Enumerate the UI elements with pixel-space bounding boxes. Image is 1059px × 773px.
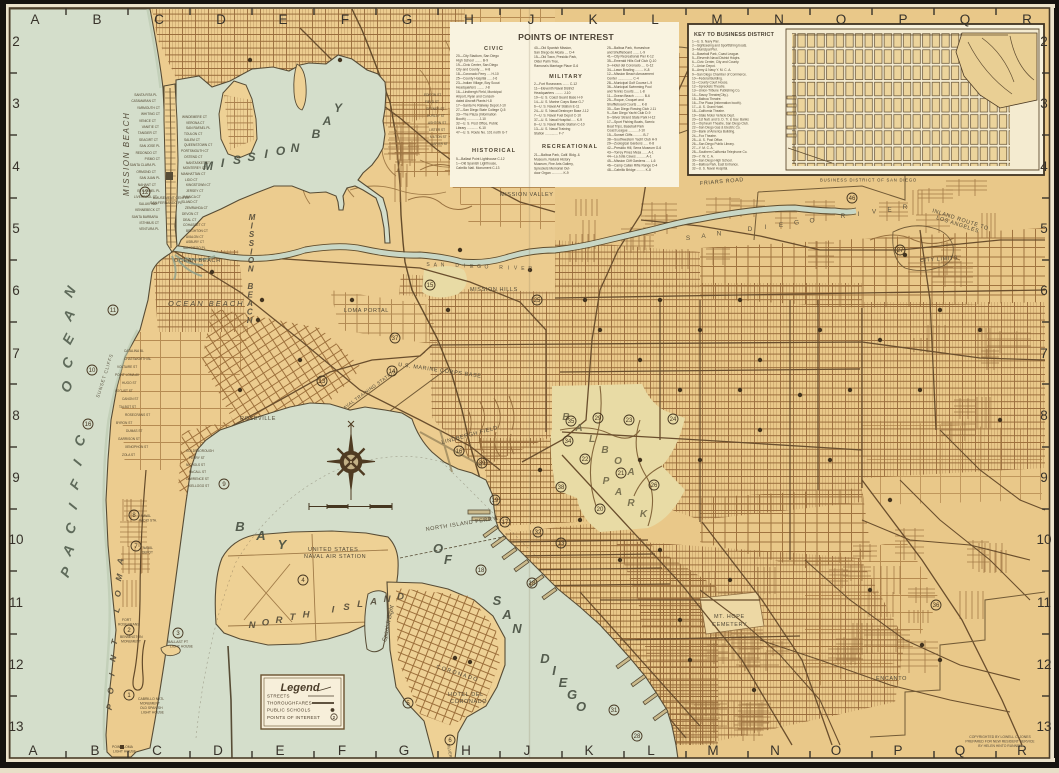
svg-text:PUBLIC SCHOOLS: PUBLIC SCHOOLS — [267, 708, 311, 713]
svg-text:2: 2 — [333, 715, 336, 720]
svg-text:P: P — [898, 12, 907, 27]
svg-text:10—U. S. Coast Guard Base H-: 10—U. S. Coast Guard Base H-9 — [534, 96, 583, 100]
svg-text:5—Ballast Point Lighthouse C-: 5—Ballast Point Lighthouse C-12 — [456, 157, 505, 161]
svg-text:12: 12 — [1036, 657, 1051, 672]
svg-text:Legend: Legend — [280, 682, 319, 694]
svg-text:D: D — [216, 12, 226, 27]
svg-text:L: L — [647, 743, 655, 758]
svg-text:THOROUGHFARES: THOROUGHFARES — [267, 701, 312, 706]
svg-text:9: 9 — [12, 470, 20, 485]
svg-text:K: K — [584, 743, 593, 758]
svg-text:KEY TO BUSINESS DISTRICT: KEY TO BUSINESS DISTRICT — [694, 32, 775, 38]
svg-text:27—San Diego State College Q-: 27—San Diego State College Q-5 — [456, 108, 506, 112]
svg-text:San Diego de Alcala .... D-4: San Diego de Alcala .... D-4 — [534, 51, 575, 55]
svg-text:42—Presidio Hill, Serra Museum: 42—Presidio Hill, Serra Museum G-6 — [607, 146, 661, 150]
svg-text:Ramona's Marriage Place G-6: Ramona's Marriage Place G-6 — [534, 64, 578, 68]
svg-text:18—Coronado Ferry .... H-10: 18—Coronado Ferry .... H-10 — [456, 72, 499, 76]
svg-text:F: F — [341, 12, 349, 27]
svg-text:BY HELEN HINTO RUNNER: BY HELEN HINTO RUNNER — [978, 744, 1022, 748]
svg-text:24—U. S. Naval Destroyer Base: 24—U. S. Naval Destroyer Base J-12 — [534, 109, 589, 113]
svg-text:R: R — [1017, 743, 1027, 758]
svg-text:P: P — [893, 743, 902, 758]
svg-text:Library ............ K-10: Library ............ K-10 — [456, 126, 486, 130]
svg-text:9—San Diego Yacht Club D-9: 9—San Diego Yacht Club D-9 — [607, 111, 651, 115]
svg-text:6: 6 — [1040, 283, 1048, 298]
svg-text:E: E — [275, 743, 284, 758]
svg-text:3: 3 — [1040, 96, 1048, 111]
svg-text:Spreckels Memorial Out-: Spreckels Memorial Out- — [534, 167, 570, 171]
svg-text:33—The Plaza (Information: 33—The Plaza (Information — [456, 113, 496, 117]
svg-text:B: B — [92, 12, 101, 27]
svg-text:Airport, Ryan and Consoli-: Airport, Ryan and Consoli- — [456, 95, 495, 99]
svg-text:O: O — [831, 743, 842, 758]
svg-text:N: N — [774, 12, 784, 27]
svg-text:15—Old Town, Presidio Park,: 15—Old Town, Presidio Park, — [534, 55, 577, 59]
svg-text:44—La Jolla Caves .......... A: 44—La Jolla Caves .......... A-1 — [607, 155, 652, 159]
svg-text:40—Old Spanish Mission,: 40—Old Spanish Mission, — [534, 46, 572, 50]
svg-text:High School ........ B-9: High School ........ B-9 — [456, 59, 488, 63]
svg-text:A: A — [28, 743, 37, 758]
svg-text:9: 9 — [1040, 470, 1048, 485]
svg-text:Coast League .......... J-10: Coast League .......... J-10 — [607, 129, 645, 133]
svg-text:17—Santa Fe Railway Depot J-1: 17—Santa Fe Railway Depot J-10 — [456, 104, 506, 108]
svg-text:BUSINESS DISTRICT OF SAN D: BUSINESS DISTRICT OF SAN DIEGO — [820, 178, 917, 183]
svg-text:G: G — [399, 743, 410, 758]
svg-text:3—Hotel del Coronado .... G-12: 3—Hotel del Coronado .... G-12 — [607, 63, 654, 67]
svg-text:dated Aircraft Plants H-8: dated Aircraft Plants H-8 — [456, 99, 492, 103]
svg-text:11: 11 — [1037, 595, 1051, 610]
svg-text:38—Southwestern Yacht Club H-: 38—Southwestern Yacht Club H-9 — [607, 137, 657, 141]
svg-text:R: R — [1022, 12, 1032, 27]
svg-text:16—Lindbergh Field, Municipal: 16—Lindbergh Field, Municipal — [456, 90, 502, 94]
svg-text:11—Eleventh Naval District: 11—Eleventh Naval District — [534, 87, 574, 91]
svg-text:C: C — [154, 12, 164, 27]
svg-text:B: B — [90, 743, 99, 758]
svg-text:5: 5 — [12, 221, 20, 236]
svg-text:11—Ocean Beach .......... B-6: 11—Ocean Beach .......... B-6 — [607, 94, 650, 98]
svg-text:36—Municipal Swimming Pool: 36—Municipal Swimming Pool — [607, 85, 652, 89]
svg-text:47—U. S. Route No. 101 north G: 47—U. S. Route No. 101 north G-7 — [456, 131, 507, 135]
svg-text:Booth) ............. J-10: Booth) ............. J-10 — [456, 117, 486, 121]
svg-text:H: H — [464, 12, 474, 27]
svg-text:13: 13 — [8, 719, 23, 734]
svg-text:13: 13 — [1036, 719, 1051, 734]
svg-text:Q: Q — [960, 12, 971, 27]
svg-text:2: 2 — [12, 34, 20, 49]
svg-text:M: M — [711, 12, 722, 27]
svg-text:7: 7 — [1040, 346, 1048, 361]
svg-text:41—City Recreational Pier K-: 41—City Recreational Pier K-12 — [607, 55, 654, 59]
svg-text:POINTS OF INTEREST: POINTS OF INTEREST — [267, 715, 320, 720]
svg-text:12: 12 — [8, 657, 23, 672]
svg-text:door Organ ............ K-9: door Organ ............ K-9 — [534, 171, 569, 175]
svg-text:A: A — [30, 12, 39, 27]
svg-text:COPYRIGHTED BY LOWELL C. JON: COPYRIGHTED BY LOWELL C. JONES — [969, 735, 1031, 739]
svg-text:Station .............. F-7: Station .............. F-7 — [534, 132, 564, 136]
svg-text:D: D — [213, 743, 223, 758]
svg-text:7: 7 — [12, 346, 20, 361]
svg-text:Cabrillo Natl. Monument C-13: Cabrillo Natl. Monument C-13 — [456, 166, 500, 170]
svg-text:13—U. S. Naval Training: 13—U. S. Naval Training — [534, 127, 570, 131]
svg-text:G: G — [402, 12, 413, 27]
svg-text:Museum, Natural History: Museum, Natural History — [534, 158, 571, 162]
svg-text:Center ................ C-4: Center ................ C-4 — [607, 76, 639, 80]
svg-text:Older Palm Tree,: Older Palm Tree, — [534, 60, 559, 64]
svg-text:4: 4 — [12, 159, 20, 174]
svg-text:Headquarters ........ J-8: Headquarters ........ J-8 — [456, 86, 490, 90]
svg-text:8: 8 — [12, 408, 20, 423]
svg-text:RECREATIONAL: RECREATIONAL — [542, 144, 598, 150]
svg-text:25—County Hospital ..... J-6: 25—County Hospital ..... J-6 — [456, 77, 497, 81]
svg-text:Museum, Fine Arts Gallery,: Museum, Fine Arts Gallery, — [534, 162, 574, 166]
svg-text:10: 10 — [1036, 532, 1051, 547]
svg-text:32—U. S. Post Office, Public: 32—U. S. Post Office, Public — [456, 122, 498, 126]
svg-text:14—U. S. Marine Corps Base G: 14—U. S. Marine Corps Base G-7 — [534, 100, 584, 104]
svg-text:M: M — [707, 743, 718, 758]
svg-text:L: L — [651, 12, 659, 27]
svg-text:E: E — [278, 12, 287, 27]
svg-text:32—U. S. Naval Hospital.: 32—U. S. Naval Hospital. — [692, 167, 728, 171]
svg-text:8—U. S. Naval Radio Station C-: 8—U. S. Naval Radio Station C-10 — [534, 123, 585, 127]
svg-text:City and County .... H-8: City and County .... H-8 — [456, 68, 490, 72]
svg-text:CIVIC: CIVIC — [484, 46, 504, 52]
svg-text:6: 6 — [12, 283, 20, 298]
svg-text:2: 2 — [1040, 34, 1048, 49]
svg-text:3: 3 — [12, 96, 20, 111]
svg-text:2—Fort Rosecrans ....... C-12: 2—Fort Rosecrans ....... C-12 — [534, 82, 577, 86]
svg-text:Shuffleboard Courts .... K-8: Shuffleboard Courts .... K-8 — [607, 103, 647, 107]
svg-text:Headquarters ......... J-10: Headquarters ......... J-10 — [534, 91, 571, 95]
svg-text:MILITARY: MILITARY — [549, 74, 583, 80]
svg-text:1—Old Spanish Lighthouse,: 1—Old Spanish Lighthouse, — [456, 162, 497, 166]
svg-text:8: 8 — [1040, 408, 1048, 423]
svg-text:17—Sport Fishing Boats, Scenic: 17—Sport Fishing Boats, Scenic — [607, 120, 655, 124]
svg-text:23—Indian Village, Boy Scout: 23—Indian Village, Boy Scout — [456, 81, 500, 85]
svg-text:11: 11 — [9, 595, 23, 610]
svg-text:N: N — [770, 743, 780, 758]
svg-text:POINTS OF INTEREST: POINTS OF INTEREST — [518, 32, 614, 42]
svg-text:K: K — [588, 12, 597, 27]
svg-text:10: 10 — [8, 532, 23, 547]
svg-text:O: O — [836, 12, 847, 27]
svg-text:STREETS: STREETS — [267, 694, 290, 699]
svg-text:5: 5 — [1040, 221, 1048, 236]
svg-text:F: F — [338, 743, 346, 758]
svg-text:21—Balboa Park, Calif. Bldg. &: 21—Balboa Park, Calif. Bldg. & — [534, 153, 581, 157]
svg-text:46—Camp Callan Rifle Range D-: 46—Camp Callan Rifle Range D-4 — [607, 163, 658, 167]
svg-text:HISTORICAL: HISTORICAL — [472, 148, 516, 154]
svg-text:7—U. S. Naval Fuel Depot C-1: 7—U. S. Naval Fuel Depot C-10 — [534, 114, 581, 118]
svg-text:20—City Stadium, San Diego: 20—City Stadium, San Diego — [456, 54, 499, 58]
svg-text:Q: Q — [955, 743, 966, 758]
svg-text:J: J — [528, 12, 535, 27]
svg-text:37—U. S. Naval Hospital .....: 37—U. S. Naval Hospital ..... K-9 — [534, 118, 582, 122]
svg-text:C: C — [152, 743, 162, 758]
svg-text:25—Balboa Park, Horseshoe: 25—Balboa Park, Horseshoe — [607, 46, 650, 50]
svg-text:H: H — [461, 743, 471, 758]
svg-text:4: 4 — [1040, 159, 1048, 174]
svg-text:19—Civic Center, San Diego: 19—Civic Center, San Diego — [456, 63, 498, 67]
svg-text:48—Cabrillo Bridge ......... K: 48—Cabrillo Bridge ......... K-8 — [607, 168, 651, 172]
svg-text:J: J — [524, 743, 531, 758]
svg-text:6—U. S. Naval Air Station E-: 6—U. S. Naval Air Station E-11 — [534, 105, 580, 109]
